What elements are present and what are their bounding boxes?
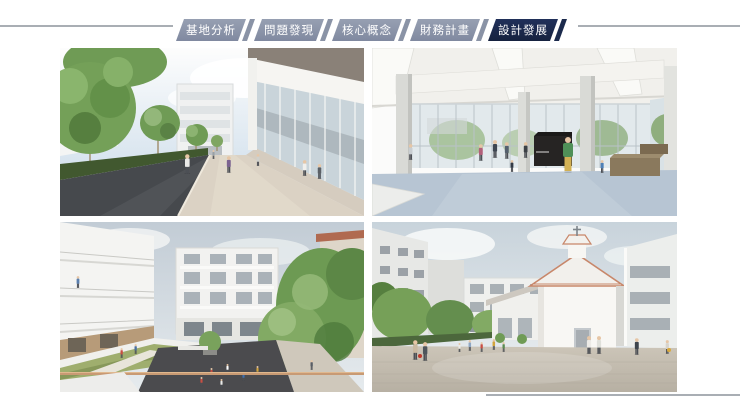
tab-shape: 基地分析	[180, 19, 242, 41]
tab-shape: 設計發展	[492, 19, 554, 41]
tab-site-analysis[interactable]: 基地分析	[180, 19, 251, 41]
top-divider-line-left	[0, 25, 173, 27]
render-pavilion-image	[372, 48, 677, 216]
background-apartment-block	[177, 84, 233, 156]
tab-problem-discovery[interactable]: 問題發現	[258, 19, 329, 41]
tab-core-concept[interactable]: 核心概念	[336, 19, 407, 41]
tab-shape: 財務計畫	[414, 19, 476, 41]
slide-section-tabs: 基地分析 問題發現 核心概念 財務計畫 設計發展	[180, 19, 563, 41]
walkway-illustration	[60, 48, 364, 216]
tab-financial-plan[interactable]: 財務計畫	[414, 19, 485, 41]
tab-label: 問題發現	[258, 19, 320, 41]
render-chapel-plaza-image	[372, 222, 677, 392]
presentation-slide: 基地分析 問題發現 核心概念 財務計畫 設計發展	[0, 0, 740, 416]
top-divider-line-right	[578, 25, 740, 27]
tab-label: 基地分析	[180, 19, 242, 41]
chapel-plaza-illustration	[372, 222, 677, 392]
tab-shape: 核心概念	[336, 19, 398, 41]
tab-design-development-active[interactable]: 設計發展	[492, 19, 563, 41]
render-courtyard-image	[60, 222, 364, 392]
tab-shape: 問題發現	[258, 19, 320, 41]
bottom-divider-line	[486, 394, 740, 396]
courtyard-illustration	[60, 222, 364, 392]
tab-label: 設計發展	[492, 19, 554, 41]
tab-label: 核心概念	[336, 19, 398, 41]
pavilion-illustration	[372, 48, 677, 216]
render-walkway-image	[60, 48, 364, 216]
tab-label: 財務計畫	[414, 19, 476, 41]
right-building	[616, 234, 677, 350]
